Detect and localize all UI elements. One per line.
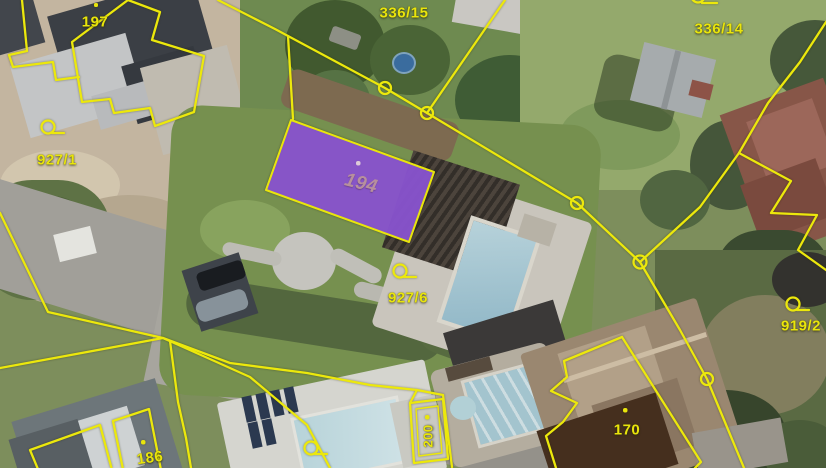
parcel-label-927-6[interactable]: 927/6 bbox=[388, 290, 428, 307]
cadastral-map-view[interactable]: 197 336/15 336/14 927/1 194 927/6 919/2 … bbox=[0, 0, 826, 468]
parcel-label-927-1[interactable]: 927/1 bbox=[37, 152, 77, 169]
parcel-label-200[interactable]: 200 bbox=[421, 424, 436, 447]
parcel-labels-layer: 197 336/15 336/14 927/1 194 927/6 919/2 … bbox=[0, 0, 826, 468]
parcel-label-186[interactable]: 186 bbox=[136, 448, 165, 468]
parcel-label-919-2[interactable]: 919/2 bbox=[781, 318, 821, 335]
parcel-label-197[interactable]: 197 bbox=[82, 14, 109, 31]
parcel-label-194-highlighted[interactable]: 194 bbox=[342, 169, 380, 198]
parcel-label-336-15[interactable]: 336/15 bbox=[380, 5, 429, 22]
parcel-label-336-14[interactable]: 336/14 bbox=[695, 21, 744, 38]
parcel-label-170[interactable]: 170 bbox=[614, 422, 641, 439]
